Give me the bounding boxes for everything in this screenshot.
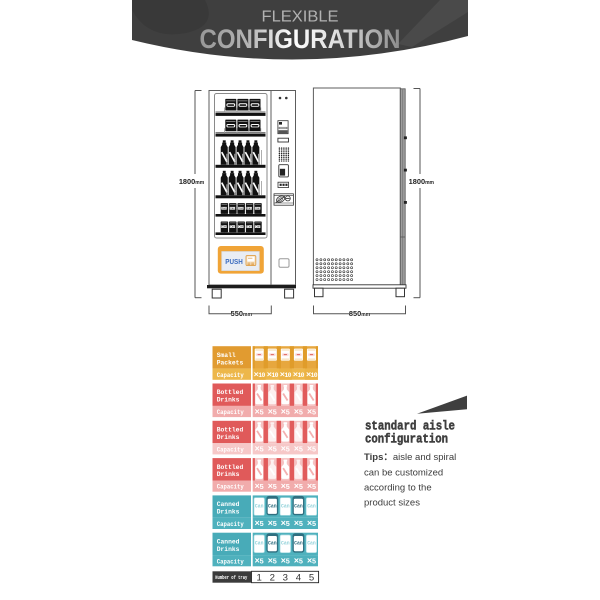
svg-text:Can: Can	[294, 541, 303, 547]
svg-text:×5: ×5	[307, 407, 316, 417]
svg-text:×5: ×5	[294, 482, 303, 492]
svg-text:Tips：aisle and spiral: Tips：aisle and spiral	[364, 452, 456, 463]
svg-text:1800mm: 1800mm	[409, 177, 435, 186]
svg-text:Can: Can	[255, 541, 264, 547]
svg-text:Capacity: Capacity	[217, 409, 244, 416]
svg-text:×5: ×5	[281, 445, 290, 455]
svg-text:according to the: according to the	[364, 483, 432, 494]
svg-text:Bottled: Bottled	[217, 464, 244, 471]
svg-text:Drinks: Drinks	[217, 397, 240, 404]
svg-text:×5: ×5	[307, 445, 316, 455]
svg-text:Packets: Packets	[217, 359, 244, 366]
svg-text:Capacity: Capacity	[217, 558, 244, 565]
svg-text:×10: ×10	[306, 370, 318, 380]
svg-text:configuration: configuration	[365, 433, 448, 447]
svg-text:Small: Small	[217, 352, 236, 359]
svg-text:Capacity: Capacity	[217, 372, 244, 379]
svg-text:Canned: Canned	[217, 538, 240, 545]
svg-text:×5: ×5	[268, 482, 277, 492]
svg-text:×5: ×5	[307, 482, 316, 492]
svg-text:can be customized: can be customized	[364, 468, 443, 479]
svg-text:×10: ×10	[280, 370, 292, 380]
svg-text:×10: ×10	[254, 370, 266, 380]
svg-text:×5: ×5	[281, 407, 290, 417]
svg-text:×5: ×5	[268, 557, 277, 567]
svg-text:×5: ×5	[281, 482, 290, 492]
svg-text:Can: Can	[268, 541, 277, 547]
svg-text:Can: Can	[281, 541, 290, 547]
svg-text:Capacity: Capacity	[217, 521, 244, 528]
svg-text:×5: ×5	[255, 482, 264, 492]
svg-text:1: 1	[257, 573, 262, 584]
svg-text:Number of tray: Number of tray	[215, 575, 248, 581]
svg-text:×5: ×5	[307, 557, 316, 567]
svg-text:1800mm: 1800mm	[179, 177, 205, 186]
svg-text:Canned: Canned	[217, 501, 240, 508]
svg-text:4: 4	[296, 573, 302, 584]
svg-text:Can: Can	[294, 503, 303, 509]
svg-text:3: 3	[283, 573, 288, 584]
svg-text:×10: ×10	[293, 370, 305, 380]
svg-text:CONFIGURATION: CONFIGURATION	[200, 24, 401, 54]
svg-text:product sizes: product sizes	[364, 498, 420, 509]
svg-text:Can: Can	[255, 503, 264, 509]
svg-text:Capacity: Capacity	[217, 446, 244, 453]
svg-text:×5: ×5	[255, 557, 264, 567]
svg-text:Can: Can	[307, 503, 316, 509]
svg-text:×5: ×5	[294, 519, 303, 529]
svg-text:Can: Can	[281, 503, 290, 509]
svg-text:×5: ×5	[255, 519, 264, 529]
svg-text:×5: ×5	[268, 407, 277, 417]
svg-text:×10: ×10	[267, 370, 279, 380]
svg-text:Drinks: Drinks	[217, 434, 240, 441]
svg-text:Drinks: Drinks	[217, 471, 240, 478]
svg-text:×5: ×5	[294, 407, 303, 417]
svg-text:Can: Can	[307, 541, 316, 547]
svg-text:×5: ×5	[294, 445, 303, 455]
svg-text:×5: ×5	[268, 519, 277, 529]
svg-text:Capacity: Capacity	[217, 484, 244, 491]
svg-text:×5: ×5	[281, 519, 290, 529]
svg-text:Bottled: Bottled	[217, 427, 244, 434]
svg-text:×5: ×5	[255, 445, 264, 455]
svg-text:5: 5	[309, 573, 314, 584]
svg-text:×5: ×5	[281, 557, 290, 567]
svg-text:Can: Can	[268, 503, 277, 509]
svg-text:Drinks: Drinks	[217, 546, 240, 553]
svg-text:×5: ×5	[268, 445, 277, 455]
svg-text:Bottled: Bottled	[217, 389, 244, 396]
svg-text:2: 2	[270, 573, 275, 584]
svg-text:PUSH: PUSH	[225, 257, 243, 266]
svg-text:×5: ×5	[255, 407, 264, 417]
svg-text:×5: ×5	[294, 557, 303, 567]
svg-text:×5: ×5	[307, 519, 316, 529]
svg-text:Drinks: Drinks	[217, 509, 240, 516]
svg-text:standard aisle: standard aisle	[365, 420, 455, 434]
